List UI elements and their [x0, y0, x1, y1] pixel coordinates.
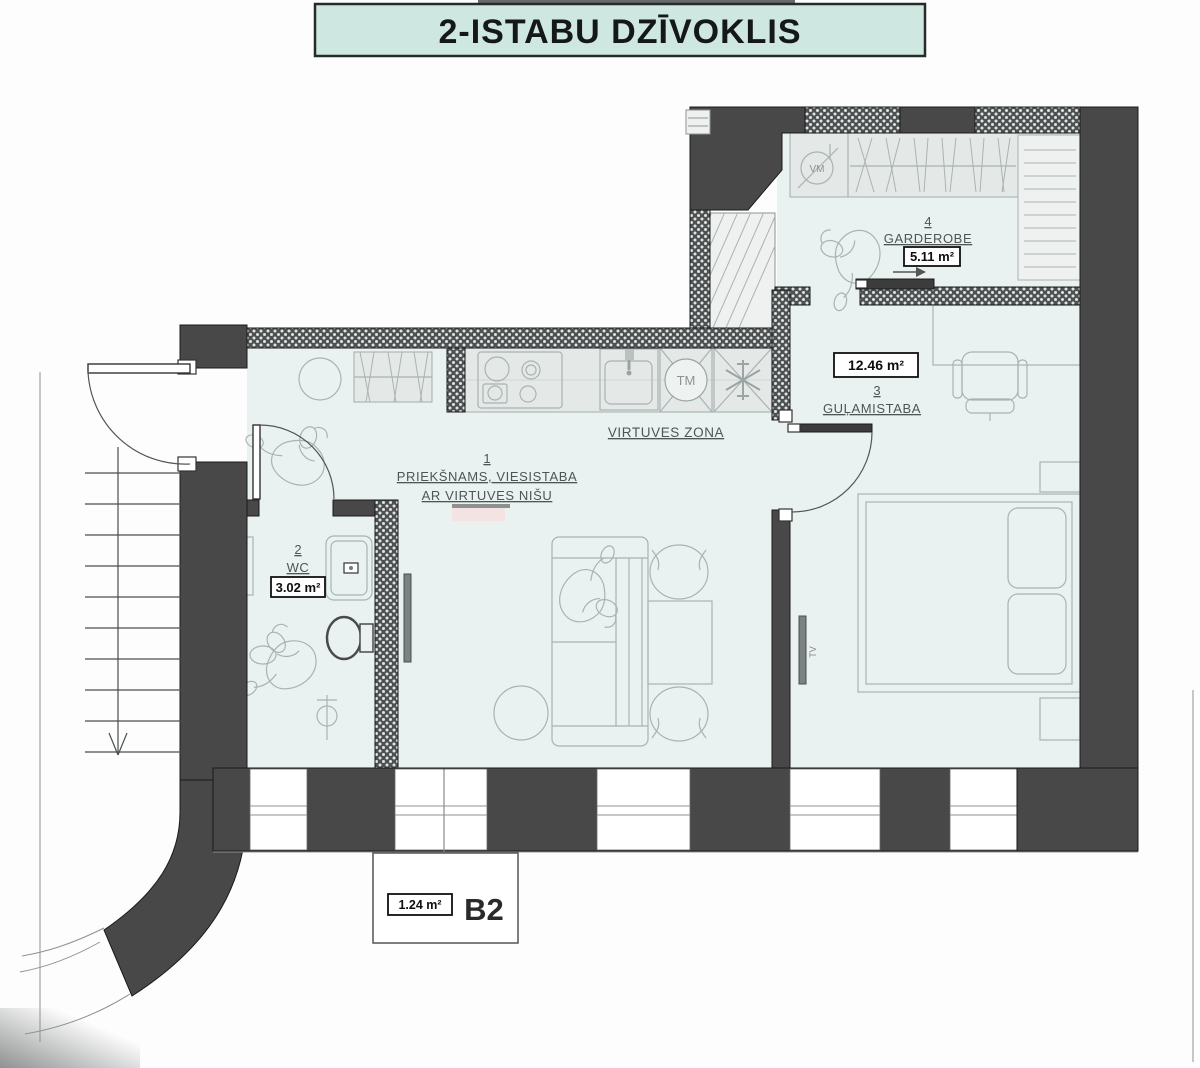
- room1-name: PRIEKŠNAMS, VIESISTABA: [397, 469, 578, 484]
- staircase: [85, 447, 181, 755]
- title-banner: 2-ISTABU DZĪVOKLIS: [315, 0, 925, 56]
- room1-number: 1: [483, 451, 490, 466]
- window: [790, 769, 880, 850]
- room4-name: GARDEROBE: [884, 231, 972, 246]
- kitchen-zone-label: VIRTUVES ZONA: [608, 425, 724, 440]
- room1-name2: AR VIRTUVES NIŠU: [422, 488, 553, 503]
- kitchen-counter: TM: [465, 348, 772, 412]
- room3-area: 12.46 m²: [848, 357, 904, 373]
- room4-number: 4: [924, 214, 931, 229]
- floor-plan-page: VM: [0, 0, 1200, 1068]
- window: [597, 769, 690, 850]
- redacted-area-box: [452, 508, 505, 521]
- room2-name: WC: [287, 560, 310, 575]
- scan-shadow: [0, 1008, 140, 1068]
- window: [395, 769, 487, 850]
- room2-area: 3.02 m²: [276, 580, 321, 595]
- window: [950, 769, 1017, 850]
- room4-area: 5.11 m²: [910, 249, 955, 264]
- unit-code: B2: [464, 892, 504, 927]
- page-title: 2-ISTABU DZĪVOKLIS: [438, 13, 801, 51]
- room3-name: GUĻAMISTABA: [823, 401, 921, 416]
- window: [250, 769, 307, 850]
- dishwasher-label: TM: [677, 373, 696, 388]
- redacted-bar: [452, 504, 510, 508]
- bottom-wall-windows: [213, 768, 1138, 866]
- washing-machine-label: VM: [810, 164, 825, 175]
- entry-door: [88, 360, 196, 471]
- room3-number: 3: [873, 383, 880, 398]
- garderobe-sliding-door: [856, 279, 934, 289]
- duct-shaft: [660, 212, 790, 330]
- unit-area: 1.24 m²: [398, 898, 441, 912]
- floors: [247, 133, 1080, 768]
- room2-number: 2: [294, 542, 301, 557]
- floor-plan-svg: VM: [0, 0, 1200, 1068]
- tv-label: TV: [808, 646, 818, 658]
